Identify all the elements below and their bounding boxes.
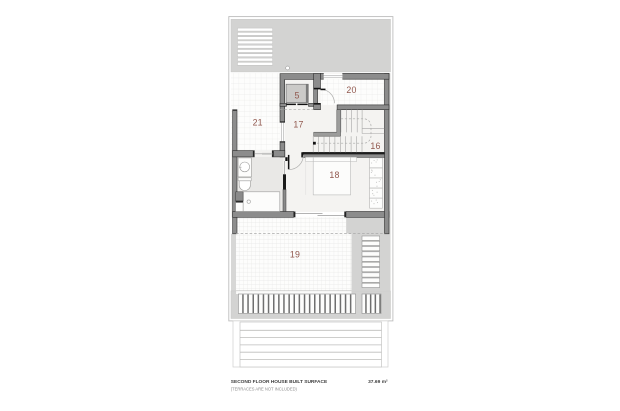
svg-text:19: 19 [290, 250, 300, 260]
svg-text:20: 20 [346, 85, 356, 95]
svg-text:17: 17 [293, 120, 303, 130]
svg-text:18: 18 [329, 170, 339, 180]
svg-text:37.69 m²: 37.69 m² [368, 379, 388, 385]
svg-text:SECOND FLOOR HOUSE BUILT SURFA: SECOND FLOOR HOUSE BUILT SURFACE [231, 379, 328, 385]
svg-text:16: 16 [370, 141, 380, 151]
svg-text:(TERRACES ARE NOT INCLUDED): (TERRACES ARE NOT INCLUDED) [231, 387, 298, 392]
svg-text:21: 21 [253, 118, 263, 128]
svg-text:5: 5 [294, 90, 299, 100]
